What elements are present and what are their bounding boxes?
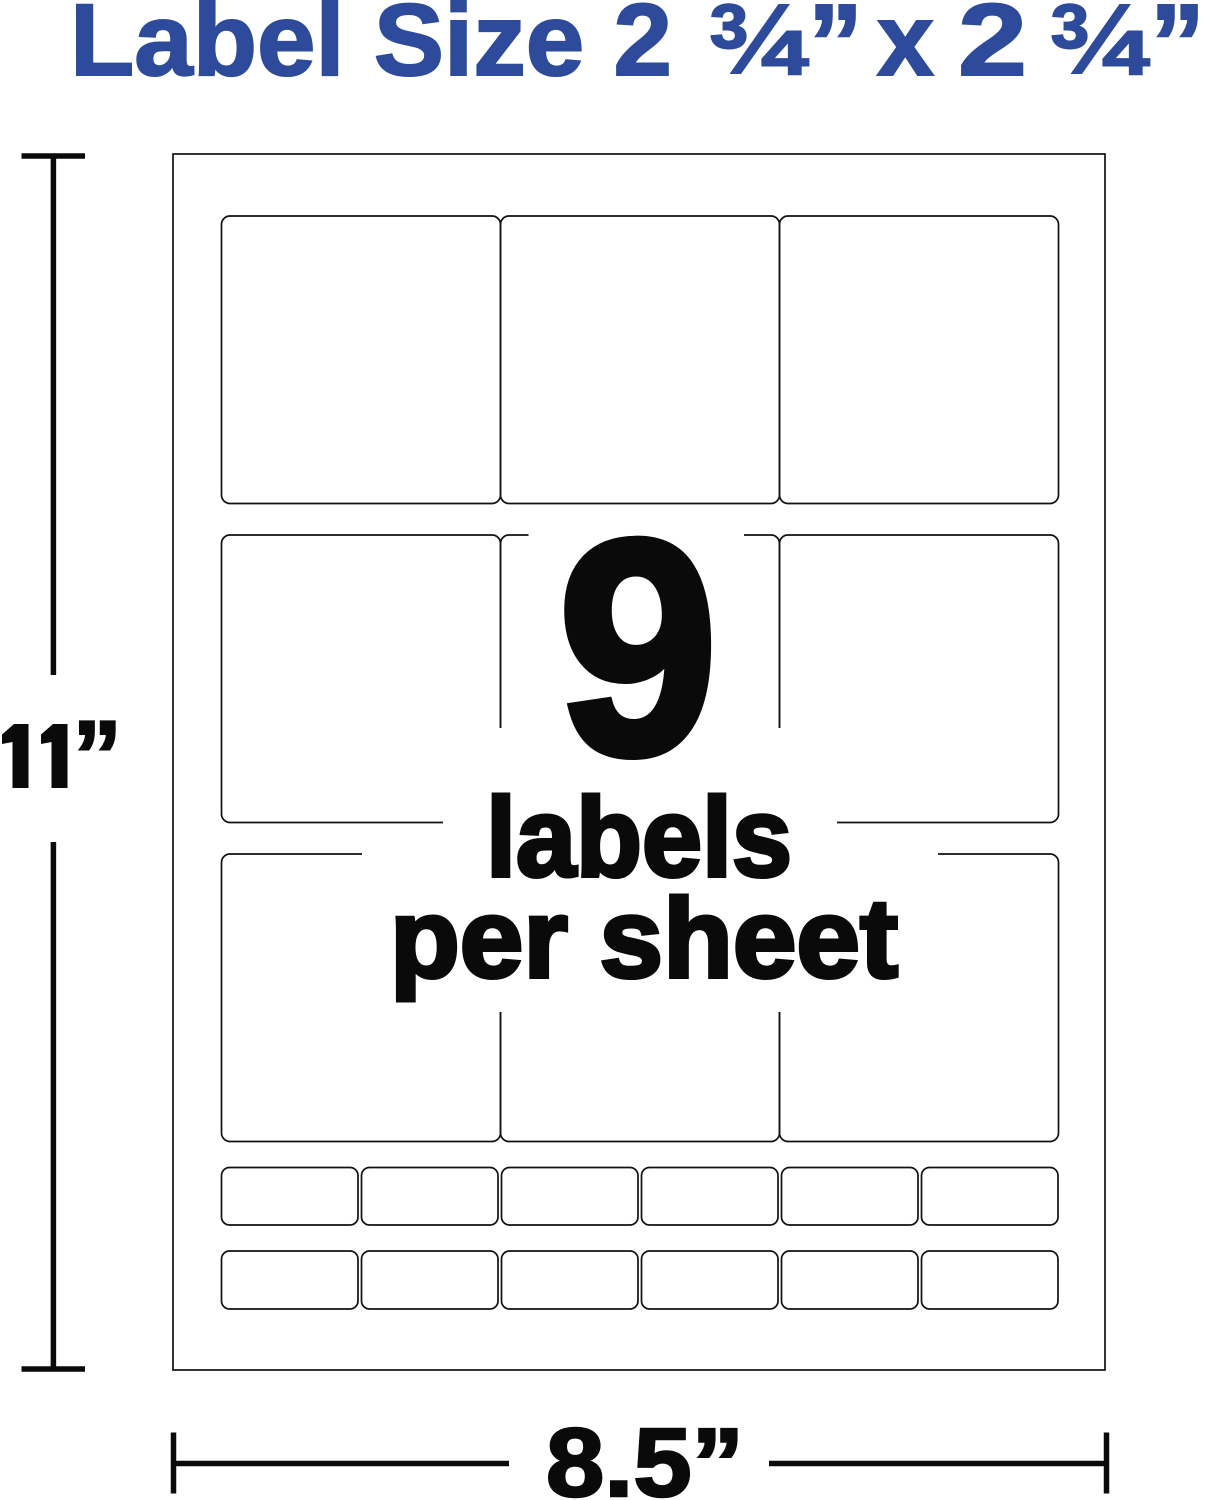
svg-text:x: x: [877, 0, 934, 97]
svg-text:4: 4: [1103, 19, 1151, 88]
svg-text:3: 3: [710, 0, 748, 62]
svg-text:”: ”: [73, 700, 123, 811]
svg-text:per sheet: per sheet: [390, 876, 898, 1001]
svg-text:”: ”: [808, 0, 863, 105]
svg-text:9: 9: [558, 476, 718, 818]
svg-text:3: 3: [1051, 0, 1089, 62]
svg-text:2: 2: [958, 0, 1027, 97]
svg-text:8.5”: 8.5”: [546, 1408, 744, 1500]
svg-text:Label Size 2: Label Size 2: [70, 0, 672, 97]
svg-text:4: 4: [762, 19, 810, 88]
svg-text:”: ”: [1150, 0, 1205, 105]
